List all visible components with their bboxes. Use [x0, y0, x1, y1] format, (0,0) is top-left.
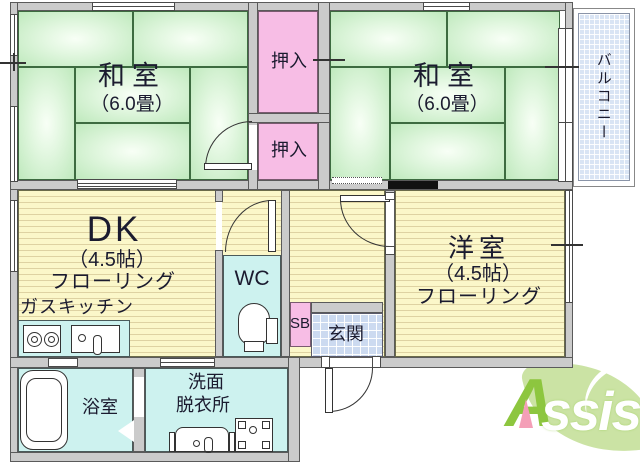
burner-icon — [31, 336, 38, 343]
bathtub-icon — [20, 370, 68, 450]
dimension-tick — [13, 53, 15, 71]
fusuma-sliding-door — [77, 179, 177, 189]
door-post — [385, 246, 395, 255]
door-leaf — [268, 200, 276, 252]
label-washroom-line2: 脱衣所 — [176, 396, 230, 415]
tatami-mat — [505, 67, 560, 180]
dimension-tick — [551, 244, 583, 246]
window-line — [14, 201, 15, 271]
toilet-tank-icon — [266, 318, 278, 344]
washbasin-wing — [169, 432, 175, 452]
label-bathroom: 浴室 — [82, 398, 118, 417]
window-line — [78, 186, 176, 187]
dimension-tick — [545, 66, 579, 68]
window-line — [559, 122, 572, 123]
dimension-tick — [313, 59, 345, 61]
washing-machine-icon — [235, 418, 273, 452]
label-washitsu-right-name: 和室 — [413, 62, 481, 90]
tatami-mat — [330, 67, 390, 180]
window-line — [161, 362, 214, 363]
wall — [248, 113, 330, 123]
doorway-gap — [134, 377, 144, 417]
door-leaf — [340, 195, 390, 202]
door-post — [385, 192, 395, 200]
wall — [10, 452, 300, 462]
label-washitsu-right-size: （6.0畳） — [405, 95, 488, 115]
label-shoe-box: SB — [290, 316, 310, 332]
floor-plan: 和室 （6.0畳） 和室 （6.0畳） 押入 押入 バルコニー DK （4.5帖… — [0, 0, 640, 464]
label-washroom-line1: 洗面 — [188, 373, 224, 392]
wall — [215, 250, 223, 357]
label-wc: WC — [235, 268, 270, 290]
label-balcony: バルコニー — [595, 52, 611, 172]
window-line — [569, 191, 570, 302]
label-oshiire-lower: 押入 — [271, 141, 307, 160]
window — [565, 190, 573, 303]
label-dk-flooring: フローリング — [50, 272, 176, 293]
toilet-base-icon — [244, 341, 264, 352]
doorway-gap — [216, 202, 222, 250]
label-youshitsu-flooring: フローリング — [416, 287, 542, 308]
label-genkan: 玄関 — [328, 325, 364, 344]
window-line — [78, 183, 176, 184]
balcony-sliding-door — [558, 28, 573, 182]
washroom-sliding-door — [160, 358, 215, 367]
sink-icon — [71, 325, 120, 353]
label-youshitsu-name: 洋室 — [448, 235, 510, 262]
logo-text: ssist — [541, 379, 640, 443]
label-dk-size: （4.5帖） — [68, 250, 156, 271]
machine-corner — [262, 421, 270, 429]
door-leaf — [204, 163, 252, 170]
washbasin-icon — [175, 427, 229, 452]
drain-icon — [78, 334, 86, 342]
wall — [311, 302, 383, 313]
window-line — [424, 6, 469, 7]
tatami-mat — [18, 11, 133, 67]
door-post — [372, 356, 381, 368]
window — [10, 200, 18, 272]
sliding-door-black-bar — [388, 181, 438, 189]
machine-corner — [262, 441, 270, 449]
stove-icon — [23, 325, 61, 353]
faucet-icon — [93, 335, 102, 355]
machine-dial — [249, 426, 257, 434]
machine-corner — [238, 421, 246, 429]
window-line — [14, 107, 15, 181]
label-gas-kitchen: ガスキッチン — [20, 298, 134, 317]
entrance-door-leaf — [325, 368, 333, 413]
label-oshiire-upper: 押入 — [271, 52, 307, 71]
bathtub-inner — [26, 378, 62, 442]
window-line — [565, 29, 566, 181]
tatami-mat — [447, 11, 560, 67]
label-washitsu-left-name: 和室 — [98, 62, 166, 90]
entrance-door-arc — [329, 368, 373, 412]
machine-corner — [238, 441, 246, 449]
doorway-gap — [329, 358, 373, 367]
bathroom-window — [48, 358, 78, 367]
basin-knob-icon — [193, 440, 200, 447]
tatami-mat — [390, 123, 505, 180]
label-dk-name: DK — [87, 212, 142, 249]
wall — [215, 190, 223, 202]
burner-icon — [48, 336, 55, 343]
tatami-mat — [75, 123, 190, 180]
label-youshitsu-size: （4.5帖） — [434, 264, 522, 285]
window — [423, 2, 470, 11]
wall — [288, 357, 300, 462]
wall — [281, 190, 290, 357]
window-line — [14, 15, 15, 55]
window — [10, 106, 18, 182]
window — [10, 14, 18, 56]
tatami-mat — [133, 11, 248, 67]
basin-faucet-icon — [204, 437, 213, 453]
tatami-mat — [330, 11, 447, 67]
open-counter-strip — [332, 177, 382, 184]
wall — [318, 2, 330, 190]
window-line — [93, 6, 174, 7]
tatami-mat — [18, 67, 75, 180]
door-post — [321, 356, 330, 368]
label-washitsu-left-size: （6.0畳） — [90, 95, 173, 115]
window — [92, 2, 175, 11]
